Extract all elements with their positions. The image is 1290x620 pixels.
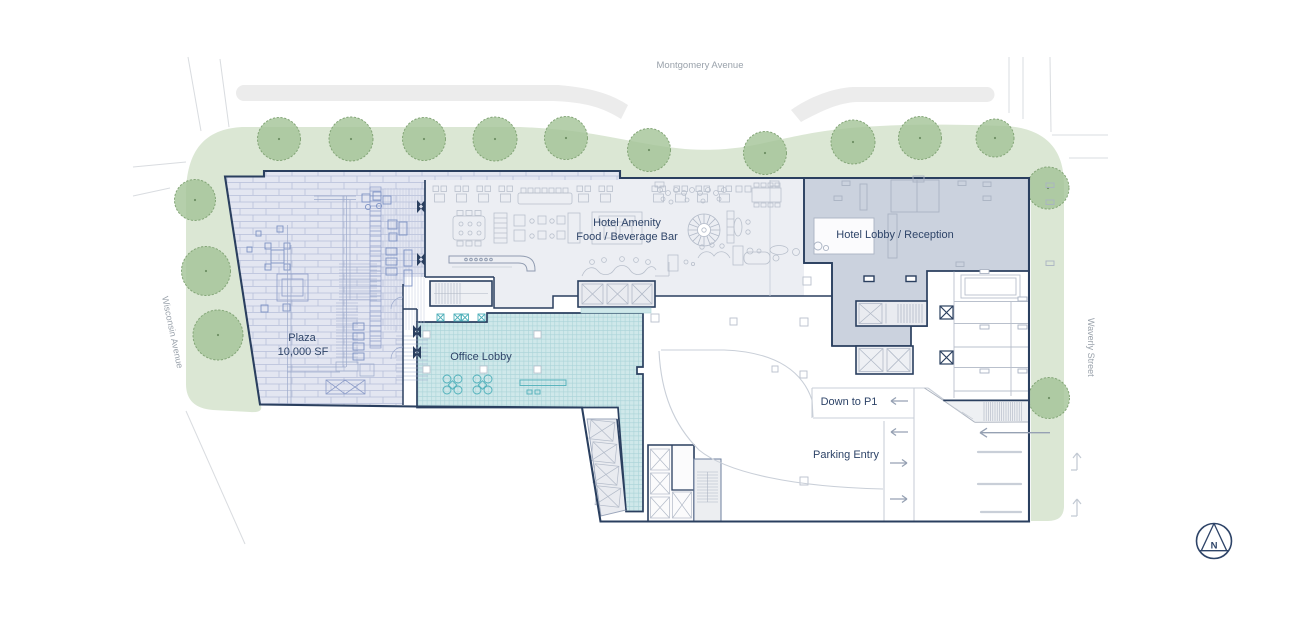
- svg-text:Food / Beverage Bar: Food / Beverage Bar: [576, 231, 678, 243]
- svg-text:Waverly Street: Waverly Street: [1086, 318, 1096, 377]
- svg-text:Hotel Amenity: Hotel Amenity: [593, 217, 661, 229]
- svg-text:Plaza: Plaza: [288, 332, 316, 344]
- svg-text:Office Lobby: Office Lobby: [450, 351, 512, 363]
- svg-text:N: N: [1211, 541, 1218, 552]
- svg-text:10,000 SF: 10,000 SF: [278, 346, 329, 358]
- svg-text:Montgomery Avenue: Montgomery Avenue: [657, 60, 744, 71]
- svg-text:Wisconsin Avenue: Wisconsin Avenue: [160, 295, 185, 369]
- svg-text:Hotel Lobby / Reception: Hotel Lobby / Reception: [836, 229, 953, 241]
- svg-text:Down to P1: Down to P1: [821, 396, 878, 408]
- svg-text:Parking Entry: Parking Entry: [813, 449, 880, 461]
